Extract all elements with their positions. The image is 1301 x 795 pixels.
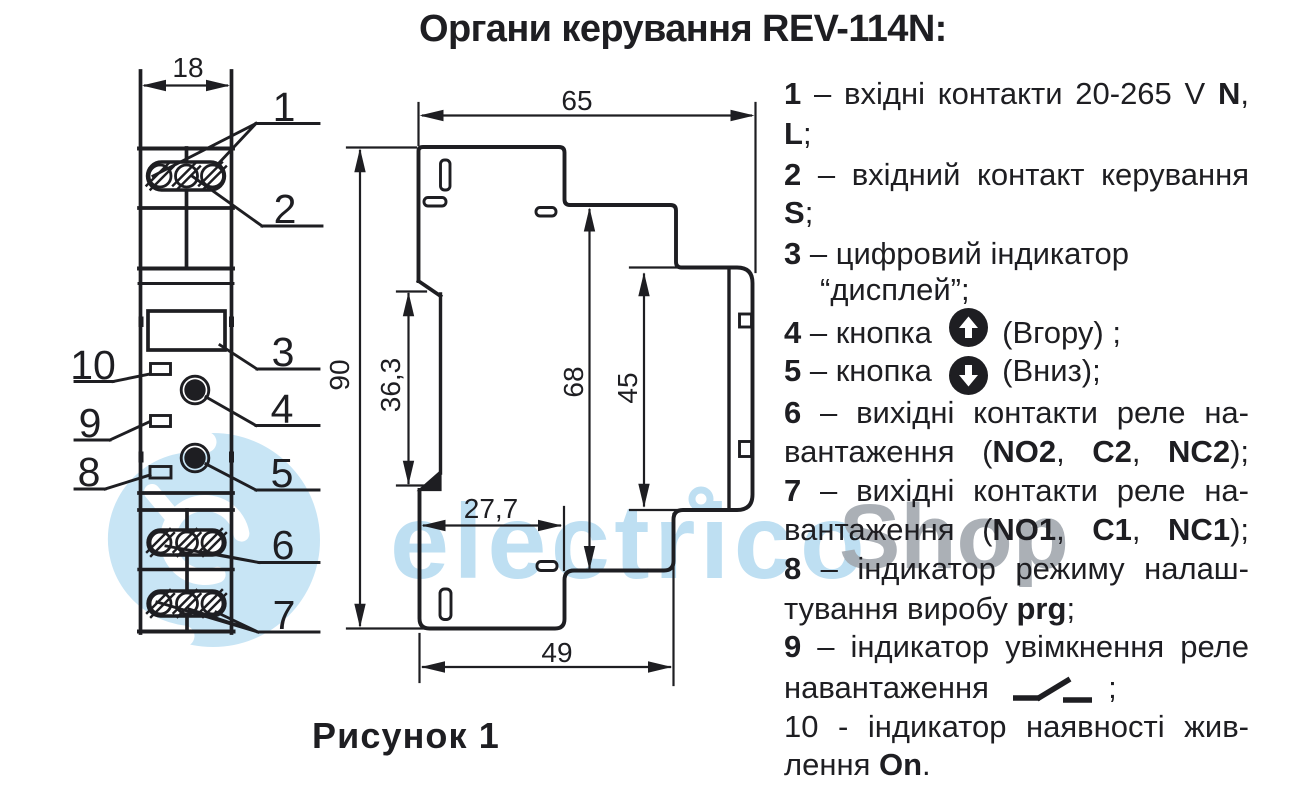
svg-text:65: 65: [561, 85, 592, 116]
svg-text:7: 7: [273, 592, 296, 638]
svg-text:68: 68: [558, 366, 589, 397]
svg-text:10: 10: [70, 342, 116, 388]
svg-text:90: 90: [324, 359, 355, 390]
svg-text:8: 8: [78, 449, 101, 495]
svg-text:5: 5: [271, 450, 294, 496]
svg-text:49: 49: [541, 637, 572, 668]
svg-text:9: 9: [79, 400, 102, 446]
svg-text:1: 1: [273, 84, 296, 130]
svg-text:3: 3: [272, 329, 295, 375]
svg-text:2: 2: [274, 186, 297, 232]
svg-text:45: 45: [612, 372, 643, 403]
svg-text:27,7: 27,7: [464, 493, 519, 524]
svg-text:4: 4: [271, 386, 294, 432]
svg-text:36,3: 36,3: [375, 358, 406, 413]
svg-text:18: 18: [172, 52, 203, 83]
svg-text:6: 6: [272, 522, 295, 568]
